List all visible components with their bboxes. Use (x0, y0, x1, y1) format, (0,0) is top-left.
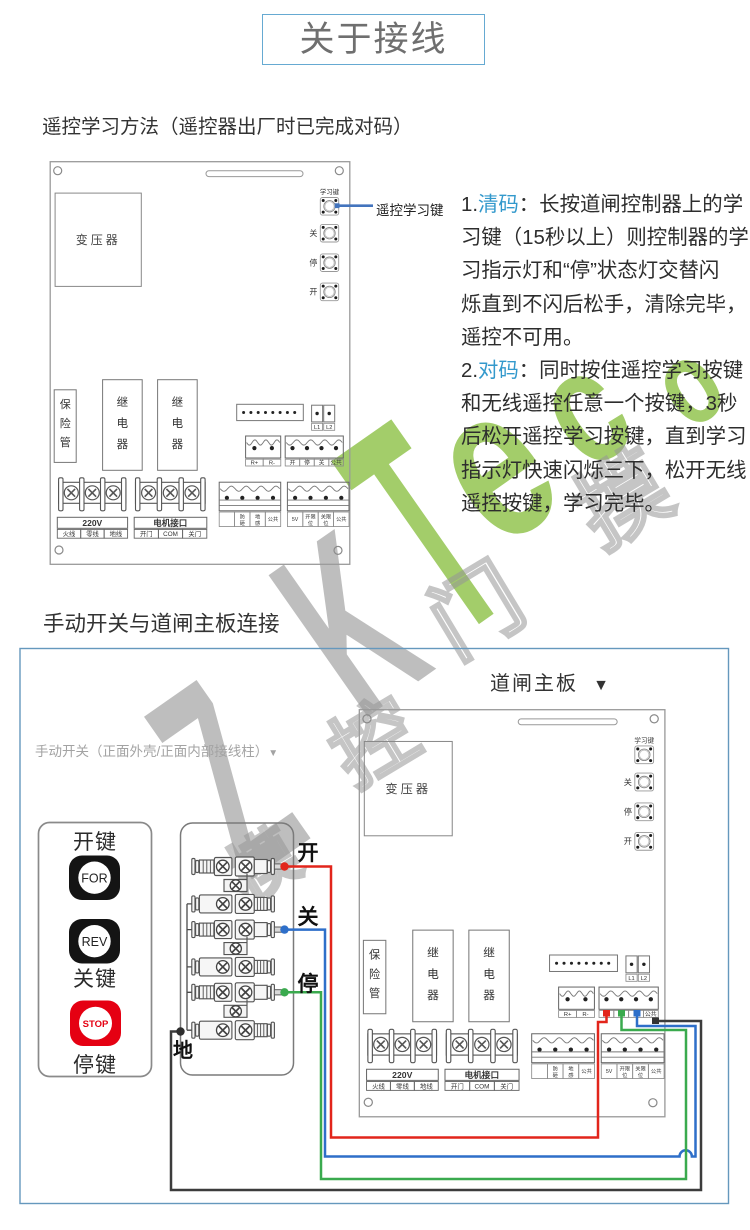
svg-text:FOR: FOR (81, 872, 107, 886)
svg-text:开: 开 (298, 842, 319, 865)
svg-text:STOP: STOP (83, 1019, 109, 1030)
svg-text:REV: REV (82, 935, 108, 949)
svg-text:停键: 停键 (73, 1054, 117, 1077)
svg-text:开键: 开键 (73, 831, 117, 854)
svg-text:关: 关 (298, 905, 319, 929)
svg-text:地: 地 (173, 1039, 193, 1062)
svg-text:关键: 关键 (73, 968, 117, 991)
svg-text:停: 停 (298, 972, 319, 996)
